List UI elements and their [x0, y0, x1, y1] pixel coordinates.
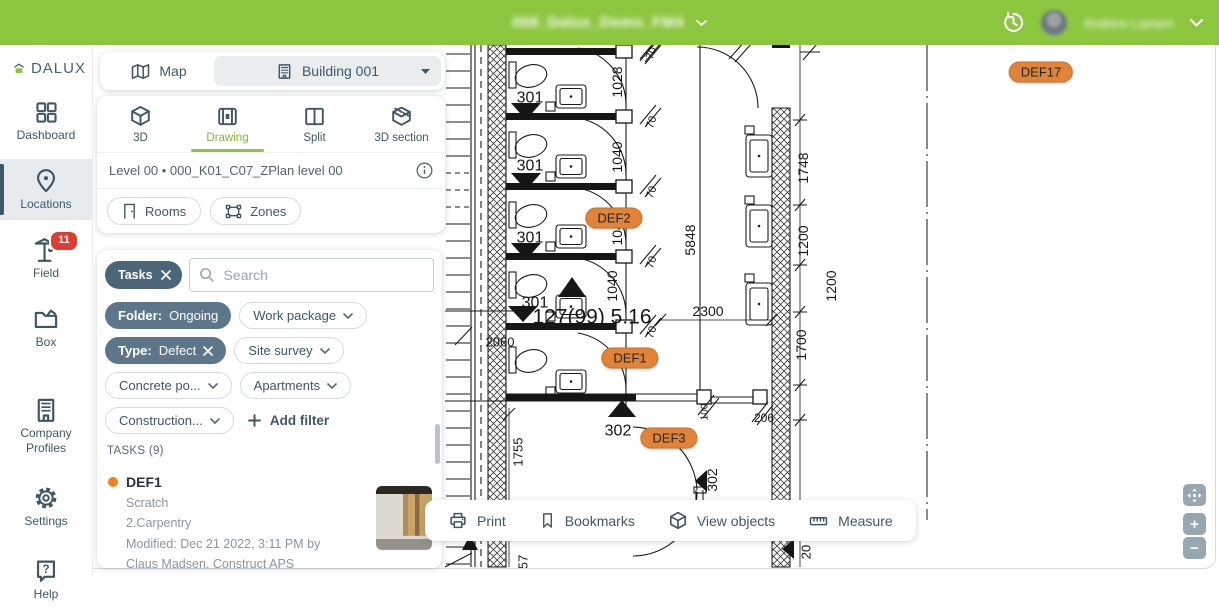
drawing-label: 70	[644, 254, 659, 270]
drawing-icon	[216, 105, 239, 128]
sidebar-item-label: Company Profiles	[2, 426, 90, 456]
chevron-down-icon	[343, 313, 353, 319]
svg-text:?: ?	[42, 564, 49, 576]
tool-label: View objects	[697, 513, 775, 529]
search-box	[189, 258, 434, 292]
chevron-down-icon	[320, 348, 330, 354]
bookmarks-button[interactable]: Bookmarks	[539, 511, 635, 530]
chip-label: Concrete po...	[119, 378, 201, 393]
task-id: DEF1	[126, 474, 162, 490]
drawing-label: 2300	[692, 303, 723, 319]
dashboard-icon	[34, 100, 59, 125]
sidebar-item-label: Settings	[24, 514, 67, 529]
filter-chip-concrete[interactable]: Concrete po...	[105, 372, 232, 399]
cube-3d-icon	[668, 511, 688, 531]
tasks-filter-panel: Tasks Folder: Ongoing Work package Type:…	[97, 250, 442, 568]
chip-value: Defect	[159, 343, 197, 358]
add-filter-label: Add filter	[270, 413, 329, 428]
zoom-controls: + −	[1183, 484, 1206, 559]
drawing-label: 1040	[609, 141, 625, 172]
sidebar-item-locations[interactable]: Locations	[0, 159, 92, 220]
field-badge: 11	[49, 230, 79, 252]
defect-marker-def2[interactable]: DEF2	[585, 208, 642, 229]
filter-chip-construction[interactable]: Construction...	[105, 407, 234, 434]
tab-3d[interactable]: 3D	[97, 96, 184, 152]
filter-chip-type[interactable]: Type: Defect	[105, 337, 226, 364]
sidebar-item-dashboard[interactable]: Dashboard	[0, 91, 92, 151]
filter-chips: Folder: Ongoing Work package Type: Defec…	[105, 292, 435, 434]
help-icon: ?	[33, 558, 59, 584]
defect-marker-def3[interactable]: DEF3	[640, 428, 697, 449]
drawing-label: 301	[517, 230, 544, 247]
filter-chip-site-survey[interactable]: Site survey	[234, 337, 343, 364]
level-row: Level 00 • 000_K01_C07_ZPlan level 00	[97, 152, 445, 188]
sidebar-item-company-profiles[interactable]: Company Profiles	[0, 388, 92, 464]
map-button-label: Map	[159, 63, 186, 79]
task-status-dot	[108, 477, 118, 487]
pan-arrows-icon	[1187, 488, 1202, 503]
sidebar-item-field[interactable]: 11 Field	[0, 228, 92, 289]
close-icon[interactable]	[203, 346, 213, 356]
drawing-label: 1028	[609, 66, 625, 97]
measure-button[interactable]: Measure	[808, 512, 892, 530]
drawing-label: 1200	[823, 270, 839, 301]
chevron-down-icon	[210, 418, 220, 424]
drawing-label: 1700	[793, 329, 809, 360]
chip-key: Type:	[118, 343, 152, 358]
chevron-down-icon	[696, 20, 707, 26]
recenter-button[interactable]	[1183, 484, 1206, 506]
dalux-logo-text: DALUX	[31, 60, 86, 77]
print-button[interactable]: Print	[448, 511, 506, 530]
rooms-zones-row: Rooms Zones	[97, 188, 445, 233]
task-title: Scratch	[126, 495, 368, 513]
plus-icon	[248, 414, 261, 427]
zones-button-label: Zones	[250, 204, 286, 219]
chip-key: Folder:	[118, 308, 162, 323]
drawing-label: 127(99) 5.16	[532, 305, 651, 328]
tool-label: Measure	[838, 513, 892, 529]
drawing-label: 70	[644, 184, 659, 200]
box-folder-icon	[33, 306, 59, 332]
avatar[interactable]	[1041, 10, 1067, 36]
drawing-label: 1748	[795, 152, 811, 183]
tab-label: 3D	[133, 132, 148, 144]
print-icon	[448, 511, 468, 530]
drawing-label: 20	[799, 545, 814, 559]
cube-section-icon	[390, 105, 413, 128]
project-selector[interactable]: 008_Dalux_Demo_FM4	[512, 14, 707, 31]
tasks-layer-chip-label: Tasks	[118, 268, 153, 282]
locations-pin-icon	[33, 168, 59, 194]
sidebar-item-label: Locations	[20, 197, 71, 212]
view-tabs: 3D Drawing Split 3D section	[97, 96, 445, 152]
tab-drawing[interactable]: Drawing	[184, 96, 271, 152]
tasks-count: TASKS (9)	[107, 445, 434, 457]
chip-label: Construction...	[119, 413, 203, 428]
task-list-item[interactable]: DEF1 Scratch 2.Carpentry Modified: Dec 2…	[105, 464, 434, 568]
info-icon[interactable]	[416, 162, 433, 179]
chevron-down-icon[interactable]	[1190, 19, 1203, 27]
drawing-label: 70	[644, 114, 659, 130]
drawing-label: 1040	[604, 270, 620, 301]
sidebar: DALUX Dashboard Locations 11 Field Box	[0, 45, 93, 575]
drawing-label: 100	[700, 403, 711, 420]
sidebar-item-settings[interactable]: Settings	[0, 476, 92, 537]
close-icon[interactable]	[161, 270, 171, 280]
map-button[interactable]: Map	[104, 56, 214, 86]
filter-chip-folder[interactable]: Folder: Ongoing	[105, 302, 231, 329]
sidebar-item-label: Field	[33, 266, 59, 281]
tool-label: Print	[477, 513, 506, 529]
chip-label: Work package	[253, 308, 336, 323]
dalux-logo[interactable]: DALUX	[0, 45, 92, 87]
chip-label: Apartments	[254, 378, 320, 393]
sidebar-item-box[interactable]: Box	[0, 297, 92, 358]
company-profiles-icon	[33, 397, 59, 423]
drawing-label: 301	[517, 90, 544, 107]
search-icon	[199, 267, 215, 283]
zoom-out-button[interactable]: −	[1183, 537, 1206, 559]
zoom-in-button[interactable]: +	[1183, 513, 1206, 535]
drawing-label: 2060	[486, 335, 515, 350]
split-icon	[303, 105, 326, 128]
rooms-button[interactable]: Rooms	[107, 197, 201, 225]
tab-split[interactable]: Split	[271, 96, 358, 152]
history-icon[interactable]	[1002, 11, 1025, 34]
add-filter-button[interactable]: Add filter	[242, 407, 335, 434]
sidebar-item-help[interactable]: ? Help	[0, 549, 92, 610]
drawing-label: 302	[704, 468, 720, 492]
filter-chip-apartments[interactable]: Apartments	[240, 372, 351, 399]
chevron-down-icon	[327, 383, 337, 389]
zone-polygon-icon	[225, 204, 242, 219]
building-selector-button[interactable]: Building 001	[214, 56, 441, 86]
tab-3d-section[interactable]: 3D section	[358, 96, 445, 152]
project-title: 008_Dalux_Demo_FM4	[512, 14, 684, 31]
sidebar-item-label: Box	[36, 335, 57, 350]
tasks-layer-chip[interactable]: Tasks	[105, 261, 182, 289]
ruler-icon	[808, 512, 829, 530]
drawing-toolbar: Print Bookmarks View objects Measure	[425, 500, 916, 541]
map-building-toggle: Map Building 001	[100, 52, 445, 90]
map-icon	[131, 63, 150, 80]
defect-marker-def17[interactable]: DEF17	[1009, 62, 1073, 83]
chip-label: Site survey	[248, 343, 312, 358]
view-mode-card: 3D Drawing Split 3D section Level 00 • 0…	[97, 96, 445, 233]
app-header: 008_Dalux_Demo_FM4 Anders Larsen	[0, 0, 1219, 45]
building-selector-label: Building 001	[302, 63, 379, 79]
settings-gear-icon	[33, 485, 59, 511]
chevron-down-icon	[208, 383, 218, 389]
caret-down-icon	[421, 69, 430, 74]
tab-label: 3D section	[374, 132, 428, 144]
task-discipline: 2.Carpentry	[126, 515, 368, 533]
drawing-label: 1200	[795, 225, 811, 256]
task-modified: Modified: Dec 21 2022, 3:11 PM by	[126, 536, 368, 554]
search-input[interactable]	[222, 266, 424, 284]
drawing-label: 302	[605, 423, 632, 440]
panel-scrollbar-thumb[interactable]	[435, 424, 440, 464]
sidebar-item-label: Dashboard	[17, 128, 76, 143]
building-icon	[276, 63, 293, 80]
task-modified-by: Claus Madsen, Construct APS	[126, 556, 368, 568]
tab-label: Drawing	[206, 132, 248, 144]
defect-marker-def1[interactable]: DEF1	[601, 348, 658, 369]
tab-label: Split	[303, 132, 325, 144]
view-objects-button[interactable]: View objects	[668, 511, 775, 531]
cube-3d-icon	[129, 105, 152, 128]
drawing-label: 1755	[511, 438, 526, 467]
room-door-icon	[122, 203, 137, 219]
drawing-label: 5848	[682, 224, 698, 255]
level-label: Level 00 • 000_K01_C07_ZPlan level 00	[109, 163, 343, 178]
drawing-label: 206	[754, 411, 774, 425]
active-indicator	[0, 164, 4, 215]
filter-chip-work-package[interactable]: Work package	[239, 302, 367, 329]
user-name: Anders Larsen	[1083, 15, 1174, 31]
sidebar-item-label: Help	[34, 587, 59, 602]
task-thumbnail[interactable]	[376, 486, 432, 550]
tool-label: Bookmarks	[565, 513, 635, 529]
dalux-house-icon	[13, 58, 25, 79]
chip-value: Ongoing	[169, 308, 218, 323]
zones-button[interactable]: Zones	[210, 197, 301, 225]
drawing-label: 301	[517, 158, 544, 175]
rooms-button-label: Rooms	[145, 204, 186, 219]
bookmark-icon	[539, 511, 556, 530]
drawing-label: 57	[516, 555, 531, 569]
